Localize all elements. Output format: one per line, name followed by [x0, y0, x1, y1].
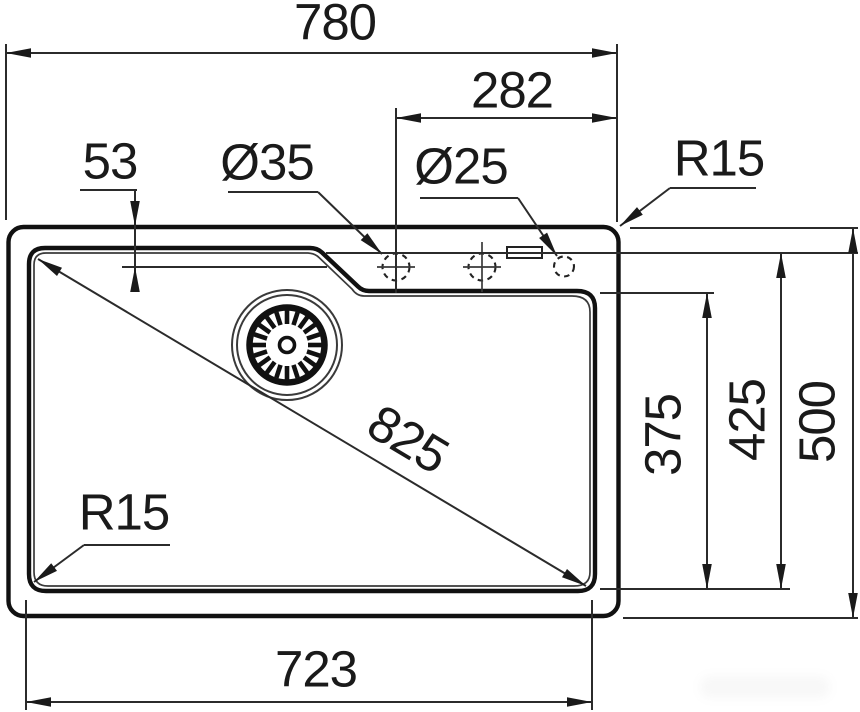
- drawing-geometry: [0, 0, 860, 712]
- dim-282: [396, 108, 617, 293]
- dim-375-label: 375: [638, 394, 689, 476]
- leader-tap-hole: [228, 192, 382, 254]
- leader-corner-radius-bowl: [34, 545, 170, 582]
- leader-corner-radius-top: [620, 188, 756, 226]
- dim-d25-label: Ø25: [414, 141, 507, 192]
- dim-d35-label: Ø35: [220, 137, 313, 188]
- dim-r15-bowl-label: R15: [79, 487, 170, 538]
- dim-r15-top-label: R15: [674, 133, 765, 184]
- faint-watermark: [700, 676, 830, 698]
- dim-425-label: 425: [722, 379, 773, 461]
- dim-282-label: 282: [471, 65, 553, 116]
- sink-outline: [9, 227, 619, 616]
- technical-drawing: 780 282 53 Ø35 Ø25 R15 825 R15 723 375 4…: [0, 0, 860, 712]
- tap-hole-35-right: [463, 242, 501, 292]
- dim-780-label: 780: [294, 0, 376, 48]
- dim-53: [80, 190, 327, 292]
- dim-53-label: 53: [83, 136, 138, 187]
- dim-723-label: 723: [275, 644, 357, 695]
- accessory-hole-25: [554, 257, 574, 277]
- dim-500-label: 500: [792, 381, 843, 463]
